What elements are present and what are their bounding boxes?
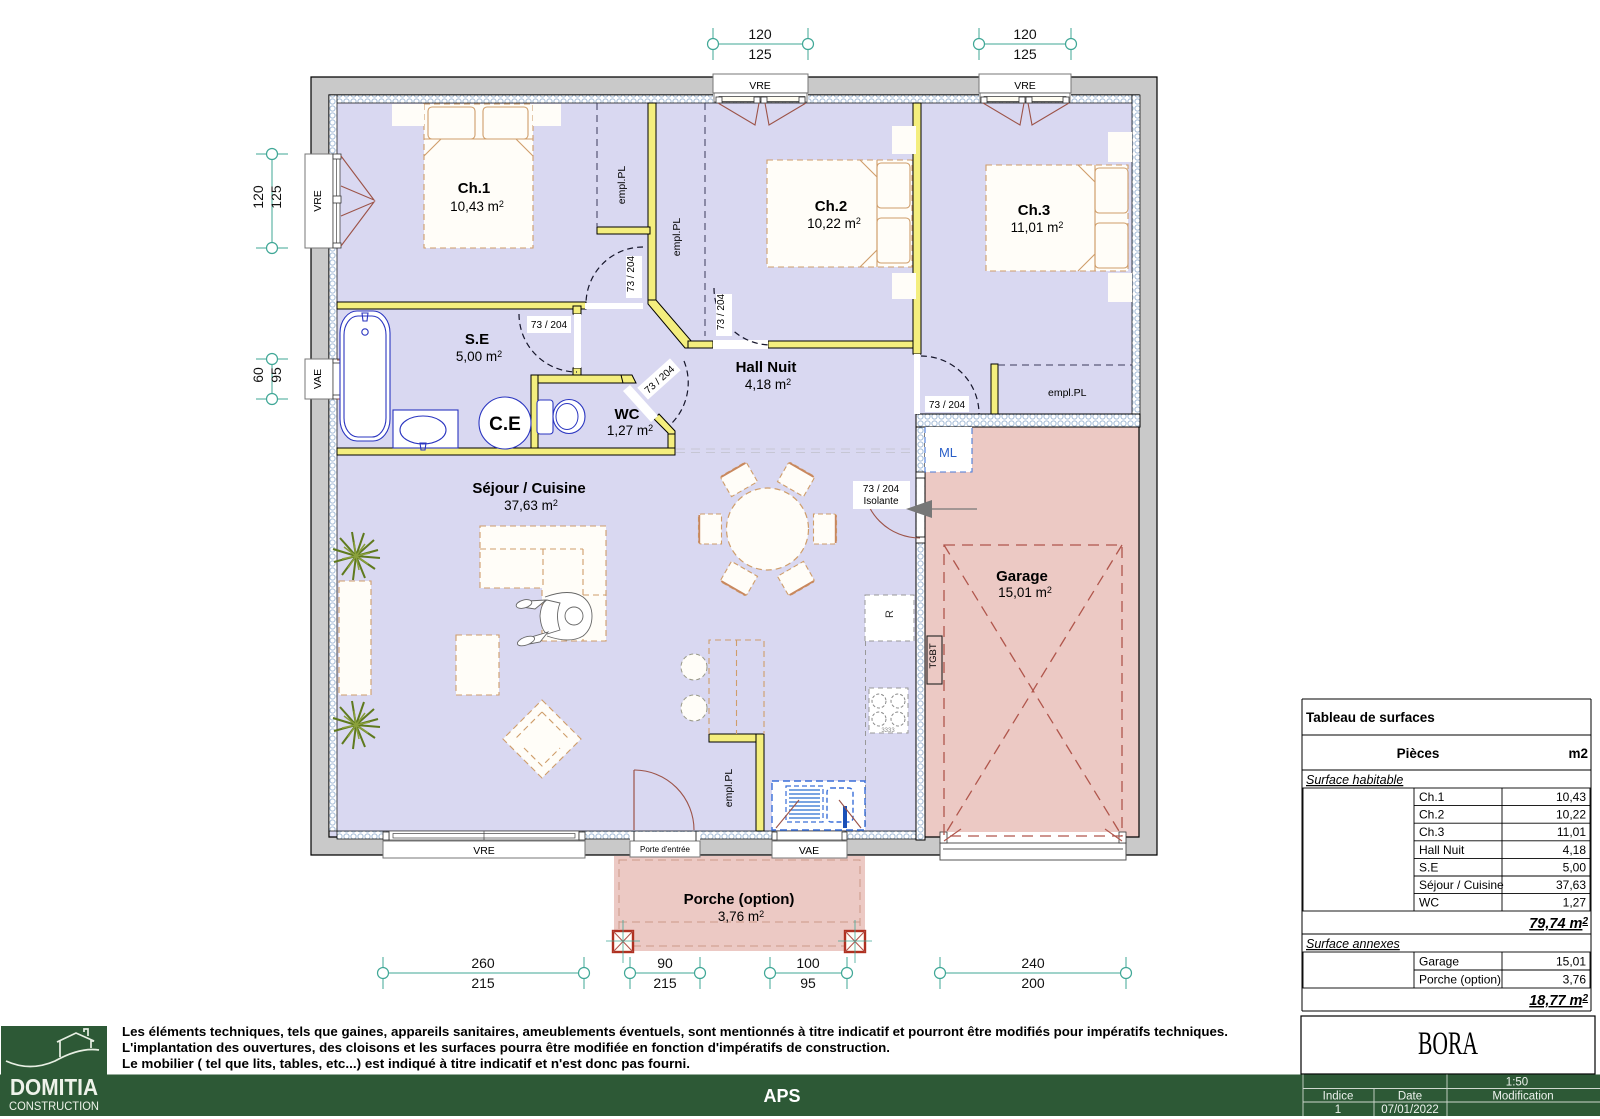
svg-text:Séjour / Cuisine: Séjour / Cuisine <box>1419 878 1504 892</box>
svg-text:S.E: S.E <box>465 331 489 348</box>
svg-text:VRE: VRE <box>749 80 771 92</box>
svg-text:125: 125 <box>1013 46 1037 62</box>
svg-text:73 / 204: 73 / 204 <box>929 400 966 411</box>
svg-text:95: 95 <box>800 975 816 991</box>
svg-text:S.E: S.E <box>1419 860 1438 874</box>
svg-text:CONSTRUCTION: CONSTRUCTION <box>9 1101 99 1113</box>
svg-text:empl.PL: empl.PL <box>671 218 683 257</box>
svg-text:WC: WC <box>615 406 640 423</box>
svg-text:R: R <box>884 610 896 618</box>
svg-text:empl.PL: empl.PL <box>616 166 628 205</box>
svg-text:73 / 204: 73 / 204 <box>716 293 727 330</box>
svg-text:Garage: Garage <box>1419 955 1459 969</box>
svg-text:BORA: BORA <box>1418 1026 1478 1062</box>
svg-text:Date: Date <box>1398 1091 1422 1103</box>
svg-text:10,22: 10,22 <box>1556 808 1586 822</box>
svg-text:15,01 m2: 15,01 m2 <box>998 585 1052 600</box>
svg-text:5,00 m2: 5,00 m2 <box>456 349 502 364</box>
svg-text:Porche (option): Porche (option) <box>684 891 795 908</box>
svg-text:240: 240 <box>1021 955 1045 971</box>
svg-text:Ch.1: Ch.1 <box>1419 790 1445 804</box>
svg-text:VAE: VAE <box>799 845 819 857</box>
svg-text:260: 260 <box>471 955 495 971</box>
svg-text:15,01: 15,01 <box>1556 955 1586 969</box>
svg-text:Ch.1: Ch.1 <box>458 180 491 197</box>
svg-text:L'implantation des ouvertures,: L'implantation des ouvertures, des clois… <box>122 1041 890 1055</box>
svg-text:Le mobilier ( tel que lits, ta: Le mobilier ( tel que lits, tables, etc.… <box>122 1057 690 1071</box>
svg-text:73 / 204: 73 / 204 <box>531 320 568 331</box>
svg-text:m2: m2 <box>1568 746 1588 761</box>
svg-text:73 / 204: 73 / 204 <box>863 484 900 495</box>
svg-text:37,63 m2: 37,63 m2 <box>504 498 558 513</box>
svg-text:3,76: 3,76 <box>1563 973 1587 987</box>
svg-text:Surface habitable: Surface habitable <box>1306 773 1403 787</box>
svg-text:Les éléments techniques, tels: Les éléments techniques, tels que gaines… <box>122 1025 1228 1039</box>
svg-text:VRE: VRE <box>1014 80 1036 92</box>
svg-text:4,18 m2: 4,18 m2 <box>745 377 791 392</box>
svg-text:95: 95 <box>268 367 284 383</box>
svg-text:1,27: 1,27 <box>1563 896 1587 910</box>
svg-text:Séjour / Cuisine: Séjour / Cuisine <box>472 480 585 497</box>
svg-text:4,18: 4,18 <box>1563 843 1587 857</box>
svg-text:125: 125 <box>268 185 284 209</box>
svg-text:215: 215 <box>653 975 677 991</box>
svg-text:1:50: 1:50 <box>1506 1077 1528 1089</box>
svg-text:11,01 m2: 11,01 m2 <box>1011 220 1064 235</box>
svg-text:Modification: Modification <box>1492 1091 1553 1103</box>
svg-text:Ch.3: Ch.3 <box>1018 202 1051 219</box>
svg-text:5,00: 5,00 <box>1563 860 1587 874</box>
svg-text:ML: ML <box>939 445 957 460</box>
svg-text:VRE: VRE <box>312 190 324 212</box>
svg-text:Pièces: Pièces <box>1397 746 1440 761</box>
svg-text:07/01/2022: 07/01/2022 <box>1381 1104 1439 1116</box>
svg-text:10,43: 10,43 <box>1556 790 1586 804</box>
svg-text:Indice: Indice <box>1323 1091 1354 1103</box>
svg-text:79,74 m2: 79,74 m2 <box>1529 916 1588 932</box>
svg-text:TGBT: TGBT <box>928 643 939 669</box>
svg-text:APS: APS <box>763 1086 800 1106</box>
svg-text:Surface annexes: Surface annexes <box>1306 937 1400 951</box>
svg-text:Hall Nuit: Hall Nuit <box>1419 843 1465 857</box>
svg-text:215: 215 <box>471 975 495 991</box>
svg-text:VRE: VRE <box>473 845 495 857</box>
svg-text:100: 100 <box>796 955 820 971</box>
svg-text:Isolante: Isolante <box>863 496 898 507</box>
svg-text:Tableau de surfaces: Tableau de surfaces <box>1306 710 1435 725</box>
svg-text:120: 120 <box>250 185 266 209</box>
svg-text:73 / 204: 73 / 204 <box>626 255 637 292</box>
svg-text:11,01: 11,01 <box>1557 825 1586 839</box>
svg-text:1,27 m2: 1,27 m2 <box>607 423 653 438</box>
svg-text:120: 120 <box>1013 26 1037 42</box>
svg-text:empl.PL: empl.PL <box>723 769 735 808</box>
svg-text:10,22 m2: 10,22 m2 <box>807 216 861 231</box>
svg-text:DOMITIA: DOMITIA <box>10 1074 98 1100</box>
svg-text:C.E: C.E <box>489 414 521 435</box>
svg-text:Hall Nuit: Hall Nuit <box>736 359 797 376</box>
svg-text:200: 200 <box>1021 975 1045 991</box>
svg-text:VAE: VAE <box>312 369 324 389</box>
svg-text:WC: WC <box>1419 896 1439 910</box>
svg-text:3,76 m2: 3,76 m2 <box>718 909 764 924</box>
svg-text:Porche (option): Porche (option) <box>1419 973 1501 987</box>
svg-text:10,43 m2: 10,43 m2 <box>450 199 504 214</box>
svg-text:3333: 3333 <box>881 728 895 734</box>
svg-text:90: 90 <box>657 955 673 971</box>
svg-text:125: 125 <box>748 46 772 62</box>
svg-text:Garage: Garage <box>996 568 1048 585</box>
svg-text:120: 120 <box>748 26 772 42</box>
svg-text:37,63: 37,63 <box>1556 878 1586 892</box>
svg-text:Porte d'entrée: Porte d'entrée <box>640 845 691 854</box>
svg-text:1: 1 <box>1335 1104 1341 1116</box>
svg-text:empl.PL: empl.PL <box>1048 387 1087 399</box>
svg-text:Ch.2: Ch.2 <box>815 198 848 215</box>
svg-text:18,77 m2: 18,77 m2 <box>1529 993 1588 1009</box>
svg-text:60: 60 <box>250 367 266 383</box>
svg-text:Ch.2: Ch.2 <box>1419 808 1445 822</box>
svg-text:Ch.3: Ch.3 <box>1419 825 1445 839</box>
